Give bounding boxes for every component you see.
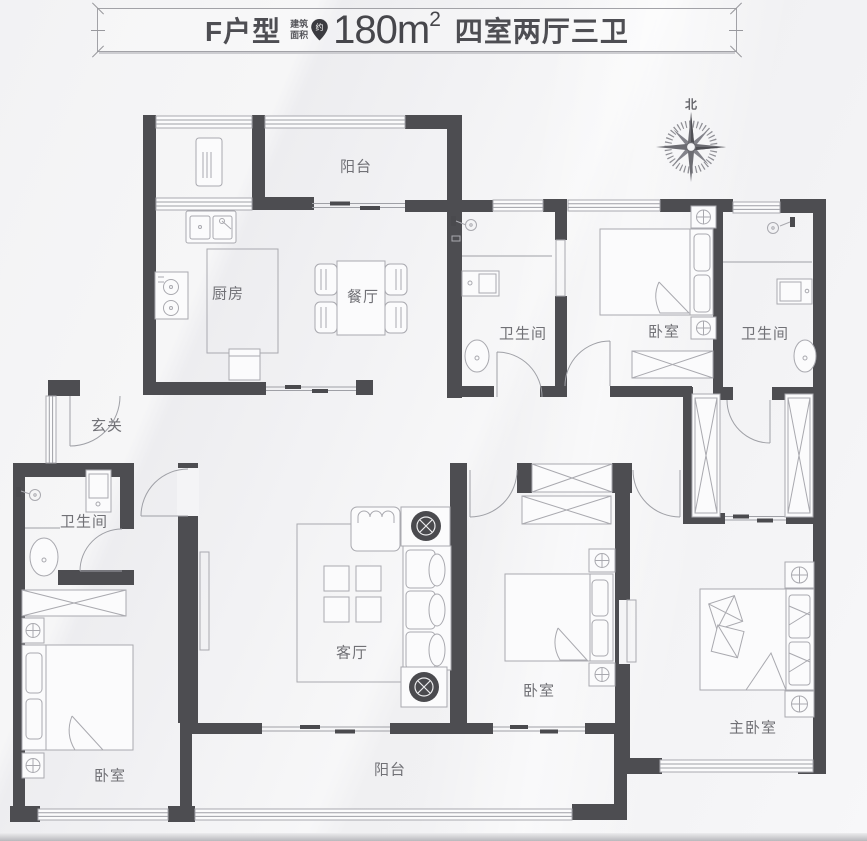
window-utility-kitchen — [156, 198, 252, 210]
living-room-furniture — [200, 507, 451, 707]
room-label-bedroom-bottom-center: 卧室 — [523, 680, 555, 701]
utility-heater — [196, 138, 222, 186]
room-label-bathroom-right: 卫生间 — [741, 323, 789, 344]
slider-bedroom-balcony — [493, 725, 585, 734]
room-label-balcony-top: 阳台 — [340, 156, 372, 177]
room-label-entry: 玄关 — [91, 415, 123, 436]
window-balcony-bottom — [195, 809, 572, 820]
slider-bath-center-panel — [556, 240, 565, 296]
window-bedroom-top-right — [568, 200, 660, 211]
bedroom-bottom-center-furniture — [505, 464, 615, 686]
window-bath-right-top — [733, 202, 780, 213]
window-bedroom-left-bottom — [38, 809, 168, 820]
bathroom-right-fixtures — [723, 217, 816, 372]
page-bottom-edge — [0, 833, 867, 841]
door-bath-center — [497, 352, 542, 397]
room-label-balcony-bottom: 阳台 — [374, 759, 406, 780]
slider-balcony-top — [312, 202, 405, 211]
door-bedroom-bottom-center — [470, 470, 517, 517]
door-bath-left — [80, 529, 122, 571]
door-master-corridor — [633, 470, 680, 517]
bedroom-top-right-furniture — [600, 206, 716, 378]
door-bath-right — [727, 400, 770, 443]
north-label: 北 — [685, 96, 697, 113]
bedroom-bottom-left-furniture — [22, 590, 133, 778]
room-label-bedroom-bottom-left: 卧室 — [94, 765, 126, 786]
slider-kitchen-entry — [266, 385, 356, 393]
compass-icon — [656, 112, 727, 183]
master-bedroom-furniture — [700, 562, 814, 717]
room-label-bathroom-center: 卫生间 — [499, 323, 547, 344]
window-utility-top — [156, 116, 252, 128]
room-label-dining: 餐厅 — [347, 286, 379, 307]
window-master-bottom — [660, 760, 813, 772]
closet-wardrobes — [692, 394, 813, 517]
window-entry-left — [46, 396, 56, 463]
window-bath-center-top — [493, 200, 543, 211]
room-label-living: 客厅 — [336, 642, 368, 663]
room-label-kitchen: 厨房 — [212, 283, 244, 304]
floorplan-page: F户型 建筑 面积 约 180m2 四室两厅三卫 — [0, 0, 867, 841]
bathroom-center-fixtures — [451, 216, 552, 372]
floor-plan — [0, 0, 867, 841]
window-balcony-top — [265, 116, 405, 128]
room-label-bathroom-left: 卫生间 — [60, 511, 108, 532]
room-label-bedroom-top-right: 卧室 — [648, 321, 680, 342]
room-label-master-bedroom: 主卧室 — [729, 717, 777, 738]
slider-living-balcony — [262, 725, 390, 734]
slider-closet — [725, 515, 786, 523]
door-bedroom-top-right — [565, 341, 610, 386]
